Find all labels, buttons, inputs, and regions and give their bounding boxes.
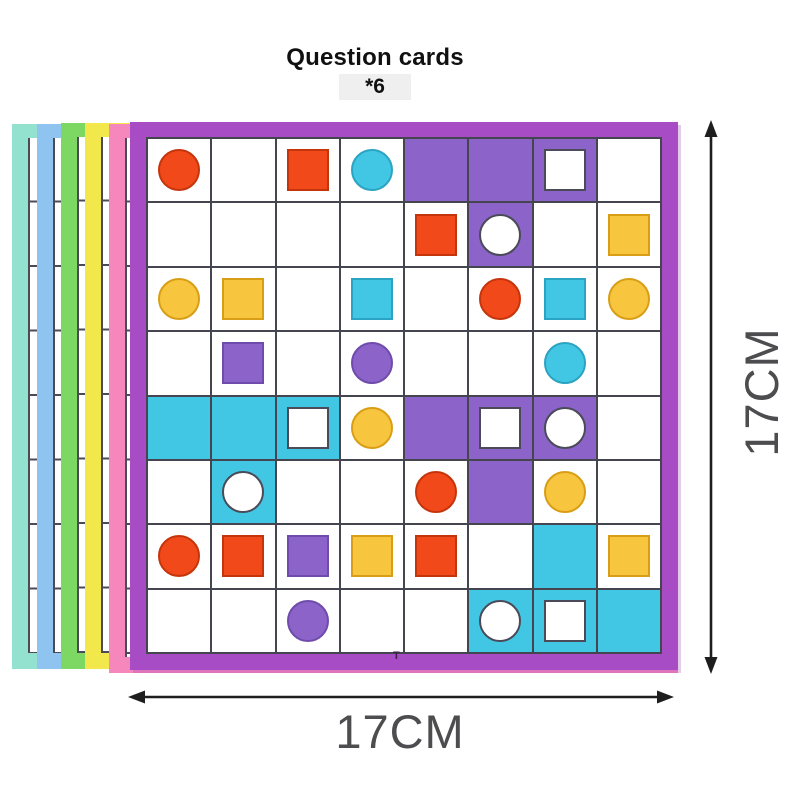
grid-cell-r3c3 bbox=[277, 268, 339, 330]
grid-cell-r5c6 bbox=[469, 397, 531, 459]
grid-cell-r6c7 bbox=[534, 461, 596, 523]
grid-cell-r2c6 bbox=[469, 203, 531, 265]
grid-cell-r8c4 bbox=[341, 590, 403, 652]
grid-cell-r1c4 bbox=[341, 139, 403, 201]
grid-cell-r5c5 bbox=[405, 397, 467, 459]
front-question-card: T bbox=[130, 122, 678, 670]
yellow-circle bbox=[544, 471, 586, 513]
yellow-square bbox=[351, 535, 393, 577]
yellow-circle bbox=[608, 278, 650, 320]
red-square bbox=[287, 149, 329, 191]
yellow-square bbox=[222, 278, 264, 320]
grid-cell-r2c2 bbox=[212, 203, 274, 265]
grid-cell-r4c8 bbox=[598, 332, 660, 394]
grid-cell-r5c7 bbox=[534, 397, 596, 459]
quantity-label: *6 bbox=[339, 74, 411, 100]
grid-cell-r1c2 bbox=[212, 139, 274, 201]
question-grid bbox=[146, 137, 662, 654]
white-circle bbox=[479, 600, 521, 642]
grid-cell-r1c3 bbox=[277, 139, 339, 201]
grid-cell-r4c7 bbox=[534, 332, 596, 394]
grid-cell-r4c6 bbox=[469, 332, 531, 394]
grid-cell-r7c7 bbox=[534, 525, 596, 587]
white-square bbox=[479, 407, 521, 449]
grid-cell-r3c6 bbox=[469, 268, 531, 330]
grid-cell-r1c8 bbox=[598, 139, 660, 201]
yellow-circle bbox=[158, 278, 200, 320]
grid-cell-r2c1 bbox=[148, 203, 210, 265]
white-circle bbox=[222, 471, 264, 513]
red-square bbox=[222, 535, 264, 577]
purple-square bbox=[222, 342, 264, 384]
yellow-square bbox=[608, 214, 650, 256]
grid-cell-r5c3 bbox=[277, 397, 339, 459]
grid-cell-r8c8 bbox=[598, 590, 660, 652]
grid-cell-r3c5 bbox=[405, 268, 467, 330]
grid-cell-r5c1 bbox=[148, 397, 210, 459]
grid-cell-r3c4 bbox=[341, 268, 403, 330]
red-circle bbox=[158, 535, 200, 577]
grid-cell-r8c5 bbox=[405, 590, 467, 652]
white-circle bbox=[544, 407, 586, 449]
grid-cell-r1c7 bbox=[534, 139, 596, 201]
white-square bbox=[544, 600, 586, 642]
product-image: Question cards *6 T 17CM 17CM bbox=[0, 0, 800, 800]
grid-cell-r7c6 bbox=[469, 525, 531, 587]
grid-cell-r2c3 bbox=[277, 203, 339, 265]
purple-square bbox=[287, 535, 329, 577]
grid-cell-r8c6 bbox=[469, 590, 531, 652]
white-square bbox=[544, 149, 586, 191]
grid-cell-r3c7 bbox=[534, 268, 596, 330]
grid-cell-r7c3 bbox=[277, 525, 339, 587]
product-title: Question cards bbox=[175, 44, 575, 72]
red-circle bbox=[415, 471, 457, 513]
grid-cell-r8c7 bbox=[534, 590, 596, 652]
grid-cell-r2c8 bbox=[598, 203, 660, 265]
grid-cell-r3c1 bbox=[148, 268, 210, 330]
yellow-square bbox=[608, 535, 650, 577]
grid-cell-r6c4 bbox=[341, 461, 403, 523]
height-dimension-label: 17CM bbox=[734, 282, 790, 502]
grid-cell-r1c1 bbox=[148, 139, 210, 201]
yellow-circle bbox=[351, 407, 393, 449]
grid-cell-r7c4 bbox=[341, 525, 403, 587]
white-circle bbox=[479, 214, 521, 256]
grid-cell-r6c1 bbox=[148, 461, 210, 523]
width-dimension-label: 17CM bbox=[280, 704, 520, 759]
cyan-square bbox=[351, 278, 393, 320]
grid-cell-r4c4 bbox=[341, 332, 403, 394]
grid-cell-r1c5 bbox=[405, 139, 467, 201]
grid-cell-r8c1 bbox=[148, 590, 210, 652]
cyan-circle bbox=[351, 149, 393, 191]
purple-circle bbox=[287, 600, 329, 642]
white-square bbox=[287, 407, 329, 449]
grid-cell-r3c2 bbox=[212, 268, 274, 330]
grid-cell-r6c8 bbox=[598, 461, 660, 523]
grid-cell-r2c7 bbox=[534, 203, 596, 265]
grid-cell-r6c6 bbox=[469, 461, 531, 523]
grid-cell-r4c1 bbox=[148, 332, 210, 394]
height-arrow-icon bbox=[705, 120, 718, 674]
grid-cell-r4c5 bbox=[405, 332, 467, 394]
grid-cell-r7c1 bbox=[148, 525, 210, 587]
grid-cell-r8c2 bbox=[212, 590, 274, 652]
cyan-circle bbox=[544, 342, 586, 384]
grid-cell-r4c3 bbox=[277, 332, 339, 394]
grid-cell-r1c6 bbox=[469, 139, 531, 201]
grid-cell-r2c5 bbox=[405, 203, 467, 265]
red-square bbox=[415, 535, 457, 577]
grid-cell-r2c4 bbox=[341, 203, 403, 265]
grid-cell-r5c2 bbox=[212, 397, 274, 459]
grid-cell-r5c8 bbox=[598, 397, 660, 459]
width-arrow-icon bbox=[128, 691, 674, 704]
purple-circle bbox=[351, 342, 393, 384]
title-block: Question cards *6 bbox=[175, 44, 575, 100]
red-square bbox=[415, 214, 457, 256]
grid-cell-r7c5 bbox=[405, 525, 467, 587]
grid-cell-r8c3 bbox=[277, 590, 339, 652]
border-t-mark: T bbox=[393, 651, 400, 662]
grid-cell-r7c2 bbox=[212, 525, 274, 587]
grid-cell-r6c5 bbox=[405, 461, 467, 523]
grid-cell-r6c2 bbox=[212, 461, 274, 523]
grid-cell-r5c4 bbox=[341, 397, 403, 459]
grid-cell-r6c3 bbox=[277, 461, 339, 523]
grid-cell-r4c2 bbox=[212, 332, 274, 394]
red-circle bbox=[158, 149, 200, 191]
red-circle bbox=[479, 278, 521, 320]
grid-cell-r7c8 bbox=[598, 525, 660, 587]
cyan-square bbox=[544, 278, 586, 320]
grid-cell-r3c8 bbox=[598, 268, 660, 330]
